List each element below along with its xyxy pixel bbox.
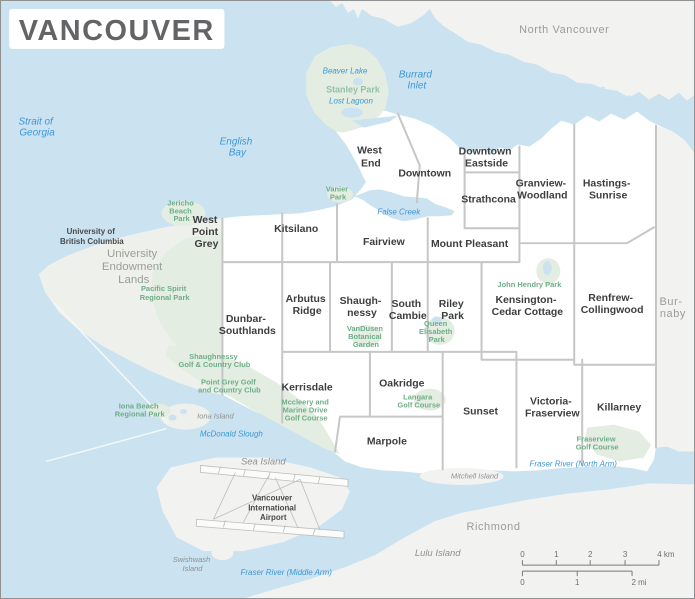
- oakridge-label: Oakridge: [379, 379, 425, 390]
- dunbar-southlands-label: Dunbar- Southlands: [219, 314, 276, 337]
- iona-pond-1: [169, 415, 177, 421]
- kensington-cedar-cottage-label: Kensington- Cedar Cottage: [492, 295, 564, 318]
- strathcona-label: Strathcona: [461, 194, 516, 205]
- scale-mi-2: 2 mi: [631, 578, 646, 587]
- kitsilano-label: Kitsilano: [274, 224, 318, 235]
- marpole-label: Marpole: [367, 437, 407, 448]
- john-hendry-park-label: John Hendry Park: [497, 280, 562, 289]
- sea-island-label: Sea Island: [241, 456, 286, 467]
- scale-mi-1: 1: [575, 578, 580, 587]
- pacific-spirit-park-label: Pacific Spirit Regional Park: [140, 284, 191, 302]
- stanley-park-label: Stanley Park: [326, 85, 380, 95]
- burnaby-land: [656, 126, 694, 452]
- mitchell-island-label: Mitchell Island: [451, 471, 499, 480]
- iona-pond-2: [180, 409, 187, 414]
- scale-km-1: 1: [554, 550, 559, 559]
- scale-mi-0: 0: [520, 578, 525, 587]
- mcdonald-slough-label: McDonald Slough: [200, 430, 263, 439]
- lost-lagoon-label: Lost Lagoon: [329, 97, 373, 106]
- lost-lagoon-water: [341, 108, 363, 118]
- map-canvas: North Vancouver Bur- naby Richmond Strai…: [0, 0, 695, 599]
- richmond-label: Richmond: [466, 521, 520, 533]
- burnaby-label: Bur- naby: [660, 296, 687, 320]
- iona-beach-park-label: Iona Beach Regional Park: [115, 402, 166, 419]
- killarney-label: Killarney: [597, 403, 641, 414]
- south-cambie-label: South Cambie: [389, 299, 427, 322]
- false-creek-label: False Creek: [377, 207, 421, 216]
- west-point-grey-label: West Point Grey: [192, 215, 221, 250]
- title-box: VANCOUVER: [9, 9, 224, 49]
- north-vancouver-label: North Vancouver: [519, 24, 609, 36]
- grandview-woodland-label: Granview- Woodland: [516, 178, 569, 201]
- scale-km-4: 4 km: [657, 550, 675, 559]
- iona-island-label: Iona Island: [197, 412, 234, 421]
- vancouver-neighbourhood-map: North Vancouver Bur- naby Richmond Strai…: [0, 0, 695, 599]
- fraserview-golf-course-label: Fraserview Golf Course: [576, 435, 619, 452]
- mccleery-golf-course-label: Mccleery and Marine Drive Golf Course: [281, 398, 330, 423]
- fraser-river-north-arm-label: Fraser River (North Arm): [530, 459, 618, 468]
- fraser-river-middle-arm-label: Fraser River (Middle Arm): [241, 568, 333, 577]
- downtown-eastside-label: Downtown Eastside: [459, 146, 515, 169]
- downtown-label: Downtown: [398, 168, 451, 179]
- lulu-island-label: Lulu Island: [415, 548, 461, 559]
- swishwash-island-land: [211, 546, 233, 560]
- point-grey-golf-club-label: Point Grey Golf and Country Club: [198, 378, 261, 395]
- page-title: VANCOUVER: [19, 15, 215, 47]
- mount-pleasant-label: Mount Pleasant: [431, 239, 509, 250]
- west-end-label: West End: [357, 145, 385, 169]
- sunset-label: Sunset: [463, 407, 498, 418]
- fairview-label: Fairview: [363, 237, 406, 248]
- riley-park-label: Riley Park: [439, 299, 467, 322]
- scale-km-2: 2: [588, 550, 593, 559]
- beaver-lake-label: Beaver Lake: [323, 67, 368, 76]
- strait-of-georgia-label: Strait of Georgia: [19, 117, 56, 139]
- kerrisdale-label: Kerrisdale: [282, 383, 333, 394]
- ubc-label: University of British Columbia: [60, 227, 124, 246]
- victoria-fraserview-label: Victoria- Fraserview: [525, 397, 580, 420]
- hastings-sunrise-label: Hastings- Sunrise: [583, 178, 634, 201]
- scale-km-3: 3: [623, 550, 628, 559]
- langara-golf-course-label: Langara Golf Course: [397, 393, 440, 410]
- scale-km-0: 0: [520, 550, 525, 559]
- renfrew-collingwood-label: Renfrew- Collingwood: [581, 293, 644, 316]
- trout-lake-water: [543, 261, 552, 275]
